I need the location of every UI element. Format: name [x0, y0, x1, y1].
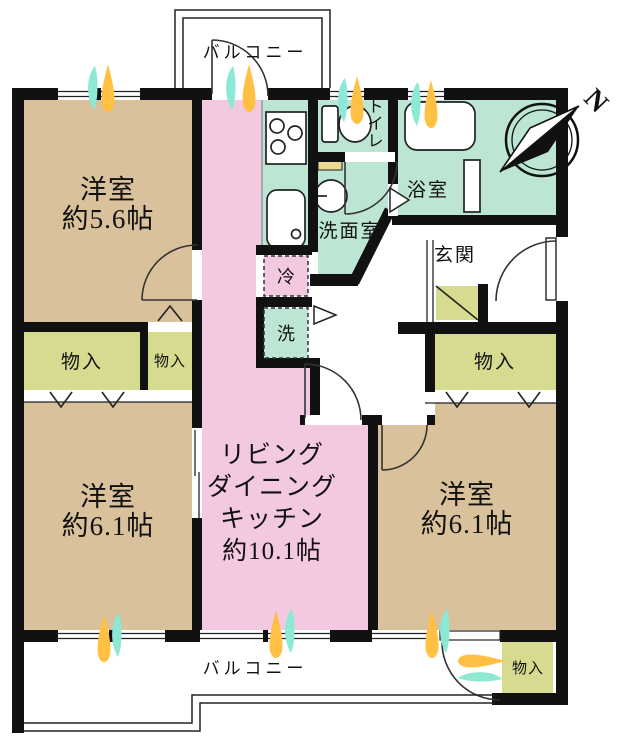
- airflow-orange-icon: [425, 80, 438, 128]
- washer-label: 洗: [277, 324, 295, 344]
- kitchen-sink-icon: [267, 190, 305, 248]
- ldk-size: 約10.1帖: [222, 537, 322, 565]
- airflow-orange-icon: [458, 655, 506, 668]
- stove-icon: [266, 112, 306, 164]
- refrigerator-label: 冷: [277, 267, 295, 287]
- north-label: N: [578, 83, 614, 119]
- balcony-top-label: バルコニー: [203, 43, 308, 62]
- room-sw-label: 洋室: [80, 482, 136, 512]
- floor-plan-svg: N バルコニー バルコニー 洋室 約5.6帖 洋室 約6.1帖 洋室 約6.1帖…: [0, 0, 626, 750]
- washbasin-icon: [315, 180, 347, 212]
- ldk-label-3: キッチン: [220, 506, 324, 533]
- balcony-bottom: [24, 695, 495, 731]
- ldk-label-2: ダイニング: [207, 473, 337, 501]
- storage-w-large-label: 物入: [61, 351, 103, 373]
- toilet-label: トイレ: [367, 99, 384, 150]
- room-nw-size: 約5.6帖: [62, 204, 155, 234]
- entrance-label: 玄関: [434, 244, 476, 266]
- washroom-label: 洗面室: [318, 220, 381, 242]
- storage-balcony-label: 物入: [512, 660, 544, 677]
- room-se-size: 約6.1帖: [421, 509, 514, 539]
- storage-e-label: 物入: [474, 351, 516, 373]
- door-entrance: [496, 238, 556, 301]
- room-se-label: 洋室: [439, 480, 495, 510]
- airflow-orange-icon: [243, 64, 256, 112]
- ldk-label-1: リビング: [220, 441, 324, 469]
- room-nw-label: 洋室: [80, 175, 136, 205]
- airflow-cyan-icon: [458, 672, 502, 681]
- floor-plan-image: N バルコニー バルコニー 洋室 約5.6帖 洋室 約6.1帖 洋室 約6.1帖…: [0, 0, 626, 750]
- airflow-orange-icon: [351, 76, 364, 124]
- entrance-step: [427, 240, 433, 322]
- room-sw-size: 約6.1帖: [62, 511, 155, 541]
- storage-w-small-label: 物入: [154, 353, 186, 370]
- bathroom-label: 浴室: [407, 179, 449, 201]
- washer-door-icon: [314, 306, 336, 324]
- bath-counter: [464, 160, 480, 212]
- balcony-bottom-label: バルコニー: [203, 659, 308, 678]
- airflow-orange-icon: [102, 64, 115, 112]
